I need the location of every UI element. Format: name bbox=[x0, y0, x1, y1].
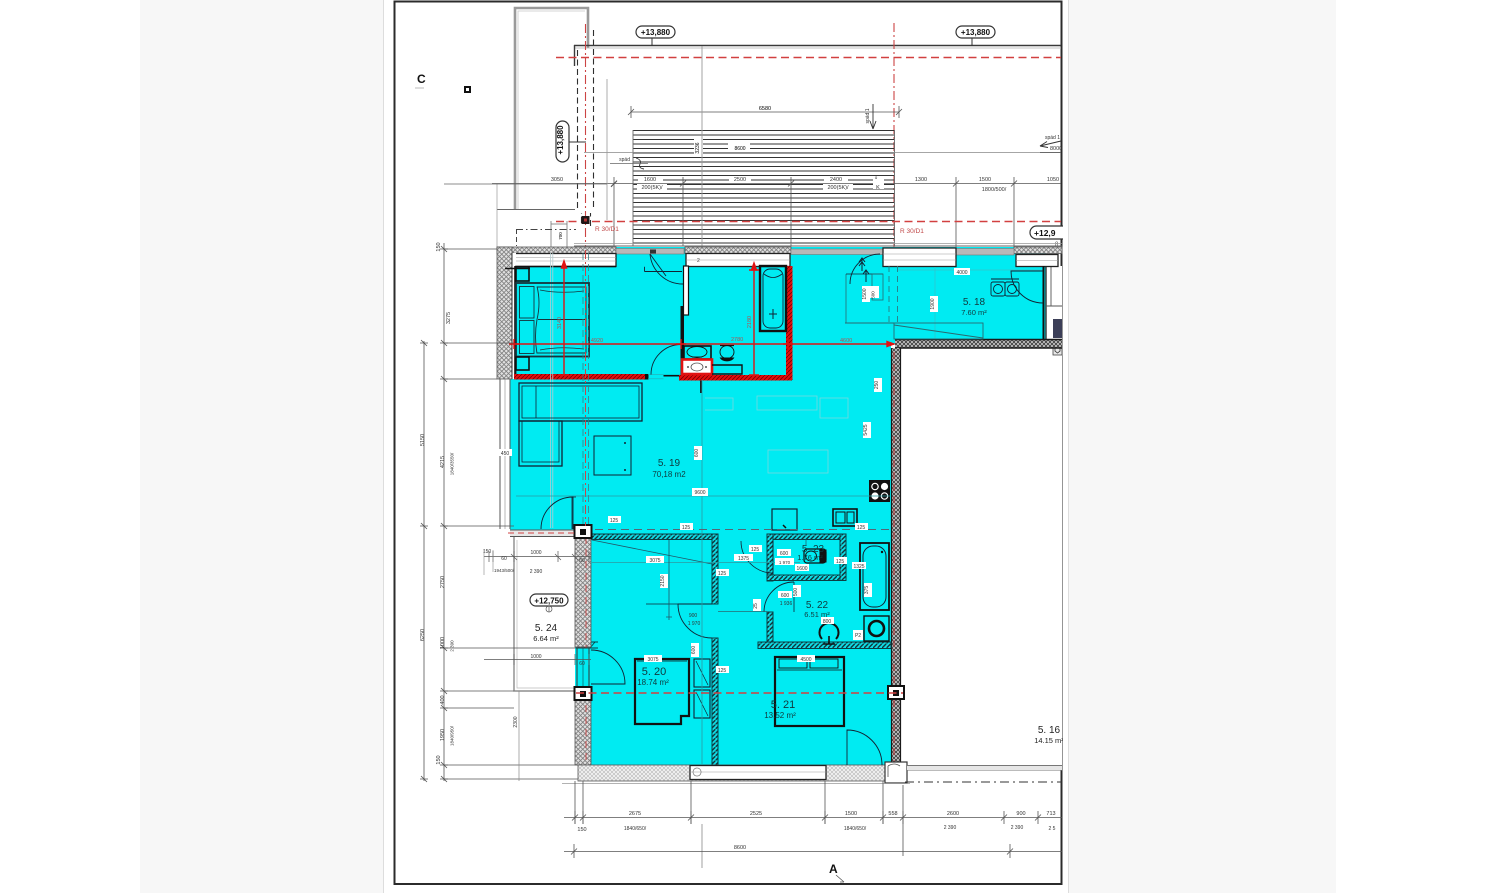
svg-text:8000: 8000 bbox=[1050, 146, 1062, 152]
svg-text:2780: 2780 bbox=[731, 337, 743, 343]
svg-text:6580: 6580 bbox=[759, 106, 771, 112]
svg-text:14.15 m²: 14.15 m² bbox=[1034, 736, 1064, 745]
svg-text:5. 19: 5. 19 bbox=[658, 458, 681, 469]
svg-text:150: 150 bbox=[436, 755, 442, 764]
svg-text:450: 450 bbox=[501, 451, 510, 457]
svg-text:+12,750: +12,750 bbox=[534, 597, 564, 606]
svg-text:3140: 3140 bbox=[557, 317, 563, 329]
svg-text:spád: spád bbox=[619, 157, 630, 163]
svg-text:125: 125 bbox=[751, 547, 760, 553]
svg-text:558: 558 bbox=[888, 811, 897, 817]
svg-text:2 390: 2 390 bbox=[944, 825, 957, 831]
svg-text:700: 700 bbox=[558, 232, 563, 240]
svg-text:2180: 2180 bbox=[747, 316, 753, 328]
svg-text:125: 125 bbox=[610, 518, 619, 524]
svg-text:4215: 4215 bbox=[440, 456, 446, 468]
svg-text:+13,880: +13,880 bbox=[641, 28, 671, 37]
svg-text:800: 800 bbox=[823, 619, 832, 625]
svg-text:3275: 3275 bbox=[446, 312, 452, 324]
svg-text:1 970: 1 970 bbox=[779, 560, 791, 565]
svg-text:2750: 2750 bbox=[440, 576, 446, 588]
svg-text:P2: P2 bbox=[855, 633, 861, 639]
svg-text:125: 125 bbox=[718, 668, 727, 674]
svg-text:R 30/D1: R 30/D1 bbox=[900, 228, 924, 235]
svg-text:3050: 3050 bbox=[551, 177, 563, 183]
svg-text:60: 60 bbox=[579, 661, 585, 667]
svg-text:6.64 m²: 6.64 m² bbox=[533, 634, 559, 643]
svg-text:4500: 4500 bbox=[800, 657, 811, 663]
svg-text:600: 600 bbox=[694, 449, 700, 458]
svg-text:1500: 1500 bbox=[979, 177, 991, 183]
svg-text:1840/650/: 1840/650/ bbox=[624, 826, 647, 832]
svg-text:2600: 2600 bbox=[947, 811, 959, 817]
svg-text:1900: 1900 bbox=[930, 298, 936, 309]
svg-text:2525: 2525 bbox=[750, 811, 762, 817]
svg-text:70,18 m2: 70,18 m2 bbox=[652, 470, 686, 479]
svg-text:900: 900 bbox=[1016, 811, 1025, 817]
svg-text:5. 21: 5. 21 bbox=[771, 699, 795, 711]
svg-text:18.74 m²: 18.74 m² bbox=[637, 678, 669, 687]
svg-text:9600: 9600 bbox=[694, 490, 705, 496]
svg-text:3075: 3075 bbox=[647, 657, 658, 663]
svg-text:1800/500/: 1800/500/ bbox=[982, 187, 1007, 193]
svg-text:500: 500 bbox=[871, 291, 876, 299]
svg-text:713: 713 bbox=[1046, 811, 1055, 817]
svg-text:1375: 1375 bbox=[738, 556, 749, 562]
svg-text:5. 16: 5. 16 bbox=[1038, 725, 1061, 736]
svg-text:1600: 1600 bbox=[644, 177, 656, 183]
svg-text:1000: 1000 bbox=[440, 637, 446, 649]
svg-text:3075: 3075 bbox=[649, 558, 660, 564]
svg-text:2300: 2300 bbox=[513, 716, 519, 727]
svg-text:60: 60 bbox=[579, 558, 585, 564]
svg-text:2 5: 2 5 bbox=[1049, 826, 1056, 832]
svg-text:1 970: 1 970 bbox=[688, 621, 701, 627]
svg-text:400: 400 bbox=[440, 695, 446, 704]
svg-text:R 30/D1: R 30/D1 bbox=[595, 226, 619, 233]
svg-text:1000: 1000 bbox=[530, 550, 541, 556]
svg-text:2 390: 2 390 bbox=[530, 569, 543, 575]
svg-text:4000: 4000 bbox=[956, 270, 967, 276]
svg-text:A: A bbox=[829, 862, 838, 876]
svg-text:125: 125 bbox=[718, 571, 727, 577]
svg-text:2 390: 2 390 bbox=[1011, 825, 1024, 831]
svg-text:4600: 4600 bbox=[840, 338, 852, 344]
svg-text:125: 125 bbox=[857, 525, 866, 531]
svg-text:+12,9: +12,9 bbox=[1034, 228, 1056, 238]
svg-text:3236: 3236 bbox=[695, 142, 701, 153]
svg-text:200(5K)/: 200(5K)/ bbox=[641, 185, 663, 191]
svg-text:600: 600 bbox=[691, 646, 697, 655]
svg-text:1840/3550/: 1840/3550/ bbox=[450, 452, 455, 475]
svg-text:1 936: 1 936 bbox=[780, 601, 793, 607]
svg-text:5150: 5150 bbox=[420, 434, 426, 446]
svg-text:60: 60 bbox=[501, 556, 507, 562]
svg-text:8600: 8600 bbox=[734, 146, 745, 152]
svg-text:1325: 1325 bbox=[853, 564, 864, 570]
svg-text:500: 500 bbox=[793, 588, 799, 597]
svg-text:600: 600 bbox=[781, 593, 790, 599]
svg-text:+13,880: +13,880 bbox=[556, 125, 565, 155]
svg-text:5. 24: 5. 24 bbox=[535, 623, 558, 634]
svg-text:1500: 1500 bbox=[845, 811, 857, 817]
svg-text:spád 1: spád 1 bbox=[1045, 135, 1060, 141]
svg-text:1500: 1500 bbox=[862, 288, 868, 299]
svg-text:900: 900 bbox=[689, 613, 698, 619]
svg-text:13.52 m²: 13.52 m² bbox=[764, 711, 796, 720]
svg-text:25: 25 bbox=[753, 603, 759, 609]
svg-text:C: C bbox=[417, 72, 426, 86]
svg-text:375: 375 bbox=[864, 586, 870, 595]
svg-text:2675: 2675 bbox=[629, 811, 641, 817]
svg-text:K: K bbox=[876, 185, 880, 191]
svg-text:1.76 m²: 1.76 m² bbox=[797, 553, 823, 562]
svg-text:250: 250 bbox=[874, 381, 880, 390]
svg-text:2500: 2500 bbox=[734, 177, 746, 183]
svg-text:1950: 1950 bbox=[440, 729, 446, 741]
svg-text:2400: 2400 bbox=[830, 177, 842, 183]
svg-text:1000: 1000 bbox=[530, 654, 541, 660]
svg-text:2: 2 bbox=[697, 258, 700, 264]
svg-text:1840/650/: 1840/650/ bbox=[844, 826, 867, 832]
svg-text:1050: 1050 bbox=[1047, 177, 1059, 183]
svg-text:200(5K)/: 200(5K)/ bbox=[827, 185, 849, 191]
svg-text:150: 150 bbox=[577, 827, 586, 833]
svg-text:2150: 2150 bbox=[660, 575, 666, 586]
svg-text:8600: 8600 bbox=[734, 845, 746, 851]
svg-text:2 390: 2 390 bbox=[450, 640, 455, 652]
svg-text:spád 1: spád 1 bbox=[865, 108, 871, 123]
svg-text:7.60 m²: 7.60 m² bbox=[961, 308, 987, 317]
svg-text:150: 150 bbox=[436, 242, 442, 251]
svg-text:5. 20: 5. 20 bbox=[642, 666, 666, 678]
svg-text:1840/950/: 1840/950/ bbox=[450, 725, 455, 746]
svg-text:4920: 4920 bbox=[591, 338, 603, 344]
svg-text:6250: 6250 bbox=[420, 629, 426, 641]
svg-text:5. 18: 5. 18 bbox=[963, 297, 986, 308]
svg-text:+13,880: +13,880 bbox=[961, 28, 991, 37]
svg-text:125: 125 bbox=[682, 525, 691, 531]
svg-text:1600: 1600 bbox=[796, 566, 807, 572]
svg-text:1943/500/: 1943/500/ bbox=[494, 568, 515, 573]
svg-text:1300: 1300 bbox=[915, 177, 927, 183]
svg-text:125: 125 bbox=[836, 559, 845, 565]
svg-text:600: 600 bbox=[780, 551, 789, 557]
svg-text:5425: 5425 bbox=[863, 424, 869, 435]
